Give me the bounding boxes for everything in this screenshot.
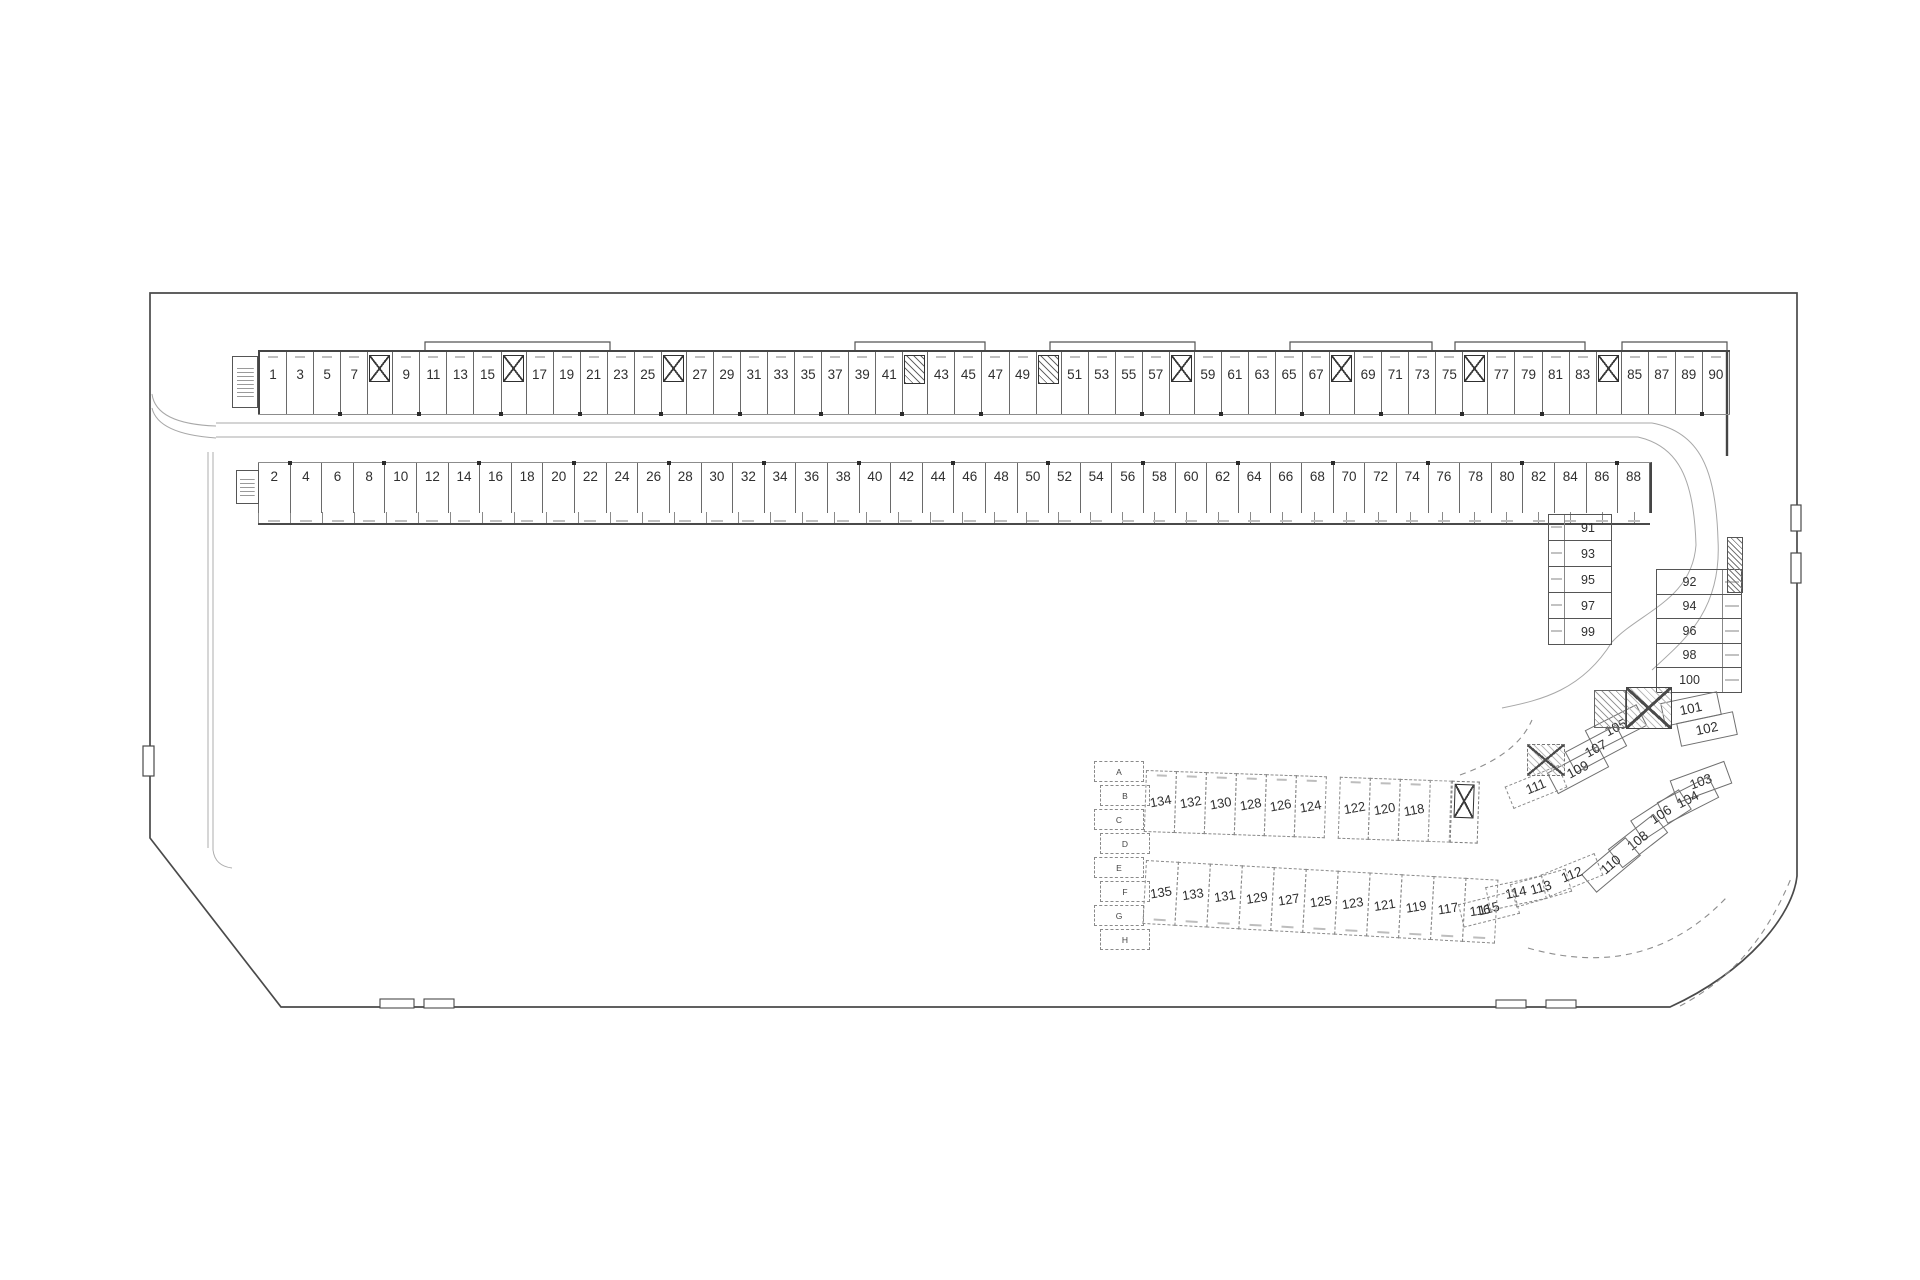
facade-bumpouts [425, 342, 1727, 350]
parking-stall: 7 [341, 352, 368, 414]
stall-number: 63 [1254, 368, 1269, 414]
stall-number: 12 [425, 470, 440, 513]
stall-number: 11 [426, 368, 440, 414]
parking-stall: 90 [1703, 352, 1730, 414]
parking-stall: 33 [768, 352, 795, 414]
parking-stall: 63 [1249, 352, 1276, 414]
stall-number: 44 [931, 470, 946, 513]
stall-number: 5 [323, 368, 331, 414]
parking-stall: 132 [1174, 771, 1207, 834]
parking-stall: 119 [1398, 874, 1435, 940]
elevator-core-icon [662, 352, 687, 414]
stall-number: 83 [1575, 368, 1590, 414]
stall-number: 131 [1213, 888, 1237, 905]
parking-stall: 15 [474, 352, 501, 414]
stall-number: 16 [488, 470, 503, 513]
parking-stall: 80 [1492, 463, 1524, 513]
stall-number: 30 [709, 470, 724, 513]
site-boundary-and-roads [0, 0, 1920, 1280]
parking-stall: 76 [1429, 463, 1461, 513]
parking-stall: 22 [575, 463, 607, 513]
parking-stall: 55 [1116, 352, 1143, 414]
parking-stall: 78 [1460, 463, 1492, 513]
stall-number: 59 [1200, 368, 1215, 414]
parking-column-91-99: 9193959799 [1548, 514, 1612, 645]
boundary-notch [143, 746, 154, 776]
stall-number: 126 [1268, 797, 1292, 815]
stall-number: 43 [934, 368, 949, 414]
stall-number: 128 [1238, 796, 1262, 814]
stall-number: 36 [804, 470, 819, 513]
boundary-notch [1791, 505, 1801, 531]
parking-stall: 56 [1112, 463, 1144, 513]
parking-stall: 124 [1294, 775, 1327, 838]
stall-code-cell [1722, 668, 1741, 692]
parking-stall: 1 [258, 352, 287, 414]
parking-stall: 45 [955, 352, 982, 414]
stall-number: 40 [867, 470, 882, 513]
stall-number: 52 [1057, 470, 1072, 513]
parking-stall: 121 [1366, 873, 1403, 939]
zone-letter: D [1100, 833, 1150, 854]
elevator-core-icon [1463, 352, 1488, 414]
zone-letter: C [1094, 809, 1144, 830]
parking-stall: 41 [876, 352, 903, 414]
stall-number: 32 [741, 470, 756, 513]
parking-stall: 122 [1338, 777, 1371, 840]
stall-number: 65 [1282, 368, 1297, 414]
stall-code-cell [1549, 515, 1565, 540]
stall-number: 19 [559, 368, 574, 414]
stall-number: 118 [1403, 802, 1426, 819]
stall-code-cell [1549, 619, 1565, 644]
stall-code-cell [1549, 567, 1565, 592]
parking-stall: 36 [796, 463, 828, 513]
parking-stall: 67 [1303, 352, 1330, 414]
parking-row-bottom: 2468101214161820222426283032343638404244… [258, 462, 1652, 513]
stall-number: 68 [1310, 470, 1325, 513]
stall-number: 133 [1181, 886, 1205, 903]
parking-stall: 44 [923, 463, 955, 513]
stall-number: 70 [1342, 470, 1357, 513]
stall-number: 130 [1208, 795, 1232, 813]
stall-number: 9 [403, 368, 411, 414]
elevator-core-icon [502, 352, 527, 414]
stall-number: 24 [614, 470, 629, 513]
future-row-upper: 134132130128126124122120118 [1144, 770, 1480, 844]
parking-stall: 131 [1206, 864, 1243, 930]
parking-stall: 37 [822, 352, 849, 414]
zone-letter: B [1100, 785, 1150, 806]
stall-number: 92 [1657, 570, 1722, 594]
stall-number: 31 [746, 368, 761, 414]
parking-stall: 86 [1587, 463, 1619, 513]
parking-stall: 38 [828, 463, 860, 513]
stall-number: 50 [1025, 470, 1040, 513]
stall-number: 15 [480, 368, 495, 414]
elevator-core-icon [1626, 687, 1672, 729]
parking-stall: 25 [635, 352, 662, 414]
stall-number: 55 [1121, 368, 1136, 414]
stall-number: 111 [1524, 777, 1548, 798]
stall-number: 51 [1067, 368, 1082, 414]
parking-stall: 34 [765, 463, 797, 513]
stall-number: 64 [1247, 470, 1262, 513]
parking-stall: 129 [1238, 865, 1275, 931]
stall-number: 62 [1215, 470, 1230, 513]
parking-stall: 62 [1207, 463, 1239, 513]
stall-number: 75 [1442, 368, 1457, 414]
stall-number: 117 [1437, 900, 1460, 917]
stall-number: 109 [1565, 759, 1591, 782]
parking-row-top: 1357911131517192123252729313335373941434… [258, 350, 1730, 415]
row-end-label [236, 470, 259, 504]
stall-number: 134 [1148, 793, 1172, 811]
stall-number: 2 [271, 470, 279, 513]
stall-code-cell [1549, 593, 1565, 618]
parking-level-floor-plan: 1357911131517192123252729313335373941434… [0, 0, 1920, 1280]
stall-number: 54 [1089, 470, 1104, 513]
stall-number: 60 [1183, 470, 1198, 513]
stall-number: 74 [1405, 470, 1420, 513]
parking-stall: 21 [581, 352, 608, 414]
elevator-core-icon [1527, 744, 1565, 776]
stall-number: 49 [1015, 368, 1030, 414]
stall-number: 66 [1278, 470, 1293, 513]
stall-number: 72 [1373, 470, 1388, 513]
stall-code-cell [1722, 644, 1741, 668]
stall-number: 45 [961, 368, 976, 414]
parking-stall: 35 [795, 352, 822, 414]
parking-stall: 93 [1548, 541, 1612, 567]
stall-number: 81 [1548, 368, 1563, 414]
stall-number: 86 [1594, 470, 1609, 513]
stall-number: 35 [801, 368, 816, 414]
stall-number: 94 [1657, 595, 1722, 619]
drive-aisle-lines [152, 394, 1718, 708]
parking-stall: 85 [1622, 352, 1649, 414]
stall-number: 71 [1388, 368, 1403, 414]
stall-number: 102 [1695, 720, 1720, 738]
parking-stall: 120 [1368, 778, 1401, 841]
stall-number: 122 [1342, 800, 1366, 818]
parking-stall: 32 [733, 463, 765, 513]
parking-stall: 75 [1436, 352, 1463, 414]
stall-number: 99 [1565, 619, 1611, 644]
parking-stall: 14 [449, 463, 481, 513]
parking-stall: 94 [1656, 595, 1742, 620]
parking-stall: 27 [687, 352, 714, 414]
parking-stall: 91 [1548, 515, 1612, 541]
stall-number: 125 [1309, 893, 1333, 910]
parking-stall: 127 [1270, 867, 1307, 933]
empty-stall [1428, 780, 1452, 843]
parking-stall: 31 [741, 352, 768, 414]
parking-stall: 4 [291, 463, 323, 513]
stall-number: 88 [1626, 470, 1641, 513]
stair-core-icon [903, 352, 928, 414]
stall-number: 73 [1415, 368, 1430, 414]
parking-stall: 49 [1010, 352, 1037, 414]
stall-number: 124 [1298, 798, 1322, 816]
stall-number: 82 [1531, 470, 1546, 513]
stall-number: 77 [1494, 368, 1509, 414]
stall-number: 127 [1277, 891, 1301, 908]
parking-stall: 66 [1271, 463, 1303, 513]
parking-stall: 60 [1176, 463, 1208, 513]
stall-number: 78 [1468, 470, 1483, 513]
stall-number: 119 [1405, 899, 1428, 916]
zone-letter: A [1094, 761, 1144, 782]
parking-stall: 116 [1462, 878, 1499, 944]
stall-number: 37 [828, 368, 843, 414]
parking-stall: 5 [314, 352, 341, 414]
parking-stall: 98 [1656, 644, 1742, 669]
parking-stall: 84 [1555, 463, 1587, 513]
stall-number: 129 [1245, 890, 1269, 907]
stall-number: 121 [1373, 897, 1397, 914]
parking-stall: 42 [891, 463, 923, 513]
parking-stall: 64 [1239, 463, 1271, 513]
stall-number: 80 [1500, 470, 1515, 513]
stall-number: 33 [774, 368, 789, 414]
stall-number: 29 [719, 368, 734, 414]
zone-letter-column: ABCDEFGH [1094, 761, 1144, 953]
parking-stall: 81 [1543, 352, 1570, 414]
parking-stall: 12 [417, 463, 449, 513]
stall-number: 53 [1094, 368, 1109, 414]
parking-stall: 61 [1222, 352, 1249, 414]
elevator-core-icon [1170, 352, 1195, 414]
parking-stall: 3 [287, 352, 314, 414]
stall-number: 42 [899, 470, 914, 513]
stall-number: 48 [994, 470, 1009, 513]
stall-number: 46 [962, 470, 977, 513]
stall-number: 18 [520, 470, 535, 513]
parking-stall: 89 [1676, 352, 1703, 414]
stall-number: 120 [1372, 801, 1396, 819]
parking-stall: 69 [1355, 352, 1382, 414]
parking-stall: 17 [527, 352, 554, 414]
stall-number: 95 [1565, 567, 1611, 592]
parking-stall: 19 [554, 352, 581, 414]
stall-number: 34 [773, 470, 788, 513]
parking-stall: 23 [608, 352, 635, 414]
stall-code-cell [1549, 541, 1565, 566]
stall-number: 38 [836, 470, 851, 513]
parking-stall: 130 [1204, 772, 1237, 835]
stall-code-cell [1722, 619, 1741, 643]
parking-stall: 13 [447, 352, 474, 414]
stall-number: 96 [1657, 619, 1722, 643]
gate-mark [380, 999, 414, 1008]
row-end-label [232, 356, 258, 408]
stall-number: 14 [456, 470, 471, 513]
stall-number: 57 [1148, 368, 1163, 414]
parking-stall: 47 [982, 352, 1009, 414]
zone-letter: G [1094, 905, 1144, 926]
parking-stall: 29 [714, 352, 741, 414]
stall-number: 22 [583, 470, 598, 513]
ramp-wall-hatch [1727, 537, 1743, 593]
parking-stall: 18 [512, 463, 544, 513]
parking-stall: 82 [1523, 463, 1555, 513]
stall-number: 26 [646, 470, 661, 513]
stall-number: 98 [1657, 644, 1722, 668]
stall-number: 116 [1469, 902, 1492, 919]
elevator-core-icon [1330, 352, 1355, 414]
parking-stall: 46 [954, 463, 986, 513]
stall-number: 87 [1654, 368, 1669, 414]
stall-number: 3 [296, 368, 304, 414]
parking-stall: 57 [1143, 352, 1170, 414]
elevator-core-icon [1450, 781, 1480, 844]
stall-code-cell [1722, 595, 1741, 619]
parking-stall: 125 [1302, 869, 1339, 935]
gate-mark [1546, 1000, 1576, 1008]
parking-stall: 20 [543, 463, 575, 513]
parking-stall: 30 [702, 463, 734, 513]
zone-letter: F [1100, 881, 1150, 902]
stall-number: 41 [882, 368, 897, 414]
stall-number: 28 [678, 470, 693, 513]
stair-core-icon [1037, 352, 1062, 414]
parking-stall: 39 [849, 352, 876, 414]
stall-number: 58 [1152, 470, 1167, 513]
parking-stall: 48 [986, 463, 1018, 513]
elevator-core-icon [368, 352, 393, 414]
parking-stall: 65 [1276, 352, 1303, 414]
stall-number: 7 [350, 368, 358, 414]
parking-stall: 6 [322, 463, 354, 513]
parking-stall: 87 [1649, 352, 1676, 414]
parking-stall: 51 [1062, 352, 1089, 414]
parking-stall: 72 [1365, 463, 1397, 513]
stall-number: 101 [1679, 700, 1704, 718]
boundary-notch [1791, 553, 1801, 583]
stall-number: 67 [1309, 368, 1324, 414]
stall-number: 61 [1227, 368, 1242, 414]
gate-mark [1496, 1000, 1526, 1008]
parking-stall: 133 [1174, 862, 1211, 928]
stall-number: 135 [1149, 884, 1173, 901]
parking-stall: 95 [1548, 567, 1612, 593]
stall-number: 8 [365, 470, 373, 513]
stall-number: 10 [393, 470, 408, 513]
stall-number: 1 [269, 368, 277, 414]
parking-stall: 10 [385, 463, 417, 513]
parking-stall: 8 [354, 463, 386, 513]
parking-stall: 118 [1398, 779, 1431, 842]
parking-stall: 54 [1081, 463, 1113, 513]
parking-stall: 58 [1144, 463, 1176, 513]
stall-number: 89 [1681, 368, 1696, 414]
stall-number: 20 [551, 470, 566, 513]
parking-stall: 68 [1302, 463, 1334, 513]
stall-number: 85 [1627, 368, 1642, 414]
stall-number: 21 [586, 368, 601, 414]
stall-number: 17 [532, 368, 547, 414]
parking-stall: 73 [1409, 352, 1436, 414]
parking-stall: 88 [1618, 463, 1650, 513]
stall-number: 69 [1361, 368, 1376, 414]
parking-stall: 117 [1430, 876, 1467, 942]
parking-stall: 52 [1049, 463, 1081, 513]
parking-stall: 2 [258, 463, 291, 513]
parking-stall: 128 [1234, 773, 1267, 836]
stall-number: 25 [640, 368, 655, 414]
stall-number: 91 [1565, 515, 1611, 540]
parking-stall: 71 [1382, 352, 1409, 414]
parking-stall: 79 [1515, 352, 1542, 414]
stall-number: 56 [1120, 470, 1135, 513]
parking-stall: 59 [1195, 352, 1222, 414]
stall-number: 84 [1563, 470, 1578, 513]
stall-number: 13 [453, 368, 468, 414]
parking-stall: 16 [480, 463, 512, 513]
parking-stall: 70 [1334, 463, 1366, 513]
parking-stall: 96 [1656, 619, 1742, 644]
stall-number: 123 [1341, 895, 1365, 912]
parking-stall: 83 [1570, 352, 1597, 414]
stall-number: 90 [1708, 368, 1723, 414]
stair-core-icon [1594, 690, 1626, 728]
parking-stall: 97 [1548, 593, 1612, 619]
parking-stall: 40 [860, 463, 892, 513]
stall-code-strip [258, 512, 1650, 525]
parking-stall: 43 [928, 352, 955, 414]
parking-stall: 9 [393, 352, 420, 414]
stall-number: 4 [302, 470, 310, 513]
elevator-core-icon [1597, 352, 1622, 414]
stall-number: 23 [613, 368, 628, 414]
stall-number: 97 [1565, 593, 1611, 618]
parking-stall: 11 [420, 352, 447, 414]
parking-stall: 24 [607, 463, 639, 513]
zone-letter: E [1094, 857, 1144, 878]
parking-stall: 99 [1548, 619, 1612, 645]
stall-number: 27 [692, 368, 707, 414]
parking-stall: 26 [638, 463, 670, 513]
stall-number: 132 [1178, 794, 1202, 812]
zone-letter: H [1100, 929, 1150, 950]
parking-stall: 74 [1397, 463, 1429, 513]
parking-stall: 53 [1089, 352, 1116, 414]
parking-stall: 50 [1018, 463, 1050, 513]
parking-stall: 77 [1488, 352, 1515, 414]
gate-mark [424, 999, 454, 1008]
stall-number: 93 [1565, 541, 1611, 566]
stall-number: 39 [855, 368, 870, 414]
parking-stall: 28 [670, 463, 702, 513]
left-drive-lines [208, 452, 232, 868]
stall-number: 76 [1436, 470, 1451, 513]
stall-number: 47 [988, 368, 1003, 414]
stall-number: 79 [1521, 368, 1536, 414]
parking-stall: 123 [1334, 871, 1371, 937]
stall-number: 6 [334, 470, 342, 513]
parking-stall: 126 [1264, 774, 1297, 837]
